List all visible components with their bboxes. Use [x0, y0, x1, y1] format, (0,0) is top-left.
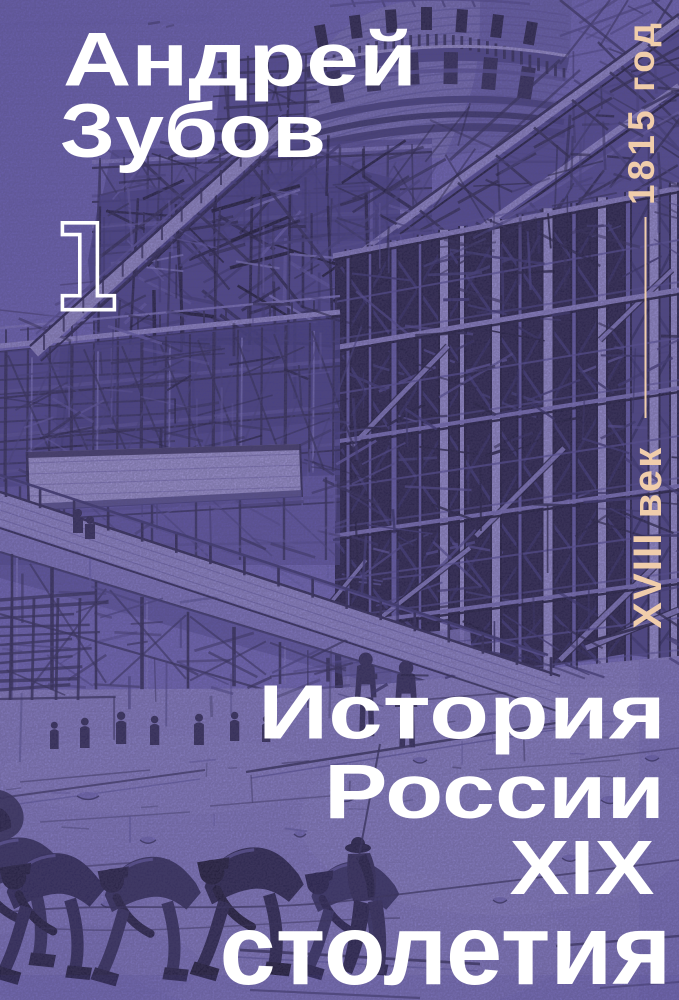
svg-text:История: История — [258, 670, 666, 756]
svg-text:России: России — [324, 749, 665, 835]
svg-text:столетия: столетия — [220, 894, 672, 1000]
svg-text:Зубов: Зубов — [60, 89, 326, 174]
